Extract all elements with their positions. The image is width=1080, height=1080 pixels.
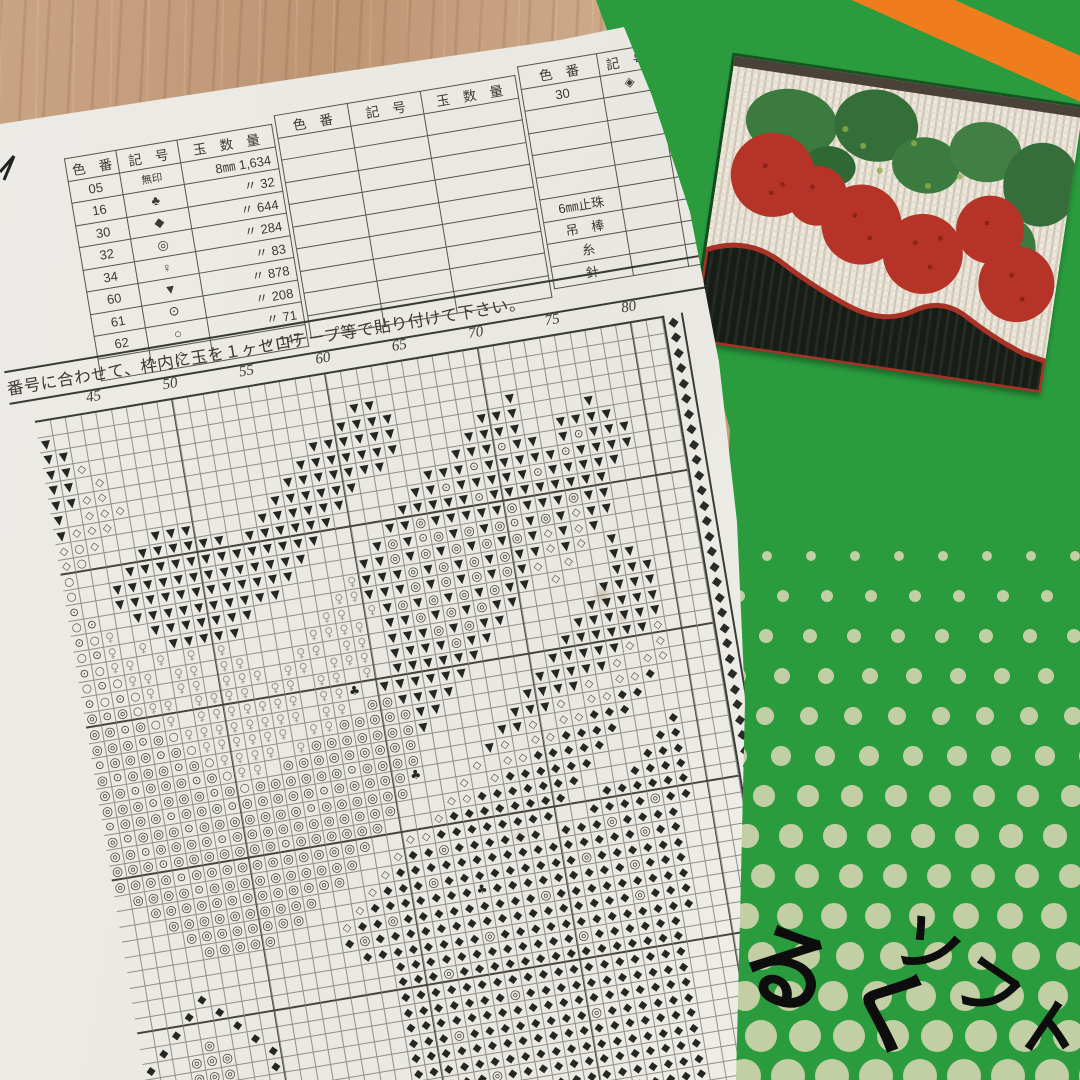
polka-dot	[973, 785, 994, 806]
polka-dot	[947, 1059, 981, 1080]
bead-pattern-chart: 4550556065707580 ▼▼▼▼▼▼▼◇▼▼▼▼▼▼▼◇▼▼▼▼▼▼▼…	[35, 316, 792, 1080]
chart-column-number: 60	[314, 349, 332, 368]
polka-dot	[955, 824, 978, 847]
polka-dot	[753, 785, 774, 806]
polka-dot	[997, 590, 1009, 602]
corner-pen-mark	[0, 150, 30, 184]
chart-column-number: 80	[620, 298, 638, 317]
polka-dot	[1043, 824, 1066, 847]
polka-dot	[927, 864, 952, 889]
polka-dot	[859, 746, 879, 766]
polka-dot	[1056, 942, 1080, 970]
polka-dot	[947, 746, 967, 766]
polka-dot	[823, 824, 846, 847]
polka-dot	[950, 668, 966, 684]
polka-dot	[797, 785, 818, 806]
polka-dot	[759, 629, 773, 643]
polka-dot	[751, 864, 776, 889]
polka-dot	[994, 668, 1010, 684]
chart-column-number: 50	[161, 375, 179, 394]
polka-dot	[847, 629, 861, 643]
polka-dot	[795, 864, 820, 889]
polka-dot	[1070, 551, 1080, 562]
polka-dot	[883, 864, 908, 889]
polka-dot	[821, 903, 848, 930]
polka-dot	[844, 707, 862, 725]
polka-dot	[1061, 785, 1080, 806]
polka-dot	[953, 590, 965, 602]
polka-dot	[779, 824, 802, 847]
chart-column-number: 45	[85, 388, 103, 407]
chart-grid: ▼▼▼▼▼▼▼◇▼▼▼▼▼▼▼◇▼▼▼▼▼▼▼▼▼▼▼▼◇◇▼▼▼▼▼▼▼▼▼▼…	[35, 316, 792, 1080]
polka-dot	[1041, 590, 1053, 602]
polka-dot	[821, 590, 833, 602]
strawberry-bead-curtain-photo	[692, 56, 1080, 393]
polka-dot	[774, 668, 790, 684]
polka-dot	[771, 1059, 805, 1080]
polka-dot	[891, 629, 905, 643]
polka-dot	[815, 1059, 849, 1080]
polka-dot	[903, 746, 923, 766]
polka-dot	[1064, 707, 1080, 725]
polka-dot	[865, 590, 877, 602]
chart-column-number: 70	[467, 324, 485, 343]
polka-dot	[1017, 785, 1038, 806]
polka-dot	[1059, 864, 1080, 889]
polka-dot	[850, 551, 861, 562]
polka-dot	[865, 903, 892, 930]
polka-dot	[894, 551, 905, 562]
polka-dot	[888, 707, 906, 725]
polka-dot	[841, 785, 862, 806]
polka-dot	[1015, 864, 1040, 889]
polka-dot	[1035, 746, 1055, 766]
polka-dot	[971, 864, 996, 889]
polka-dot	[935, 629, 949, 643]
polka-dot	[885, 785, 906, 806]
photo-scene: るく ソフトな	[0, 0, 1080, 1080]
polka-dot	[982, 551, 993, 562]
polka-dot	[771, 746, 791, 766]
polka-dot	[909, 590, 921, 602]
polka-dot	[929, 785, 950, 806]
polka-dot	[867, 824, 890, 847]
polka-dot	[756, 707, 774, 725]
chart-column-number: 55	[238, 362, 256, 381]
chart-column-number: 65	[391, 337, 409, 356]
polka-dot	[815, 746, 835, 766]
polka-dot	[762, 551, 773, 562]
polka-dot	[979, 629, 993, 643]
polka-dot	[1067, 629, 1080, 643]
bead-curtain-illustration	[692, 56, 1080, 393]
polka-dot	[862, 668, 878, 684]
polka-dot	[911, 824, 934, 847]
polka-dot	[745, 1020, 777, 1052]
polka-dot	[839, 864, 864, 889]
polka-dot	[997, 903, 1024, 930]
polka-dot	[1041, 903, 1068, 930]
polka-dot	[1020, 707, 1038, 725]
polka-dot	[803, 629, 817, 643]
polka-dot	[1023, 629, 1037, 643]
polka-dot	[999, 824, 1022, 847]
polka-dot	[777, 590, 789, 602]
polka-dot	[932, 707, 950, 725]
chart-column-number: 75	[544, 311, 562, 330]
polka-dot	[976, 707, 994, 725]
polka-dot	[1038, 668, 1054, 684]
polka-dot	[991, 1059, 1025, 1080]
polka-dot	[1026, 551, 1037, 562]
polka-dot	[991, 746, 1011, 766]
polka-dot	[938, 551, 949, 562]
polka-dot	[800, 707, 818, 725]
polka-dot	[818, 668, 834, 684]
polka-dot	[906, 668, 922, 684]
polka-dot	[806, 551, 817, 562]
